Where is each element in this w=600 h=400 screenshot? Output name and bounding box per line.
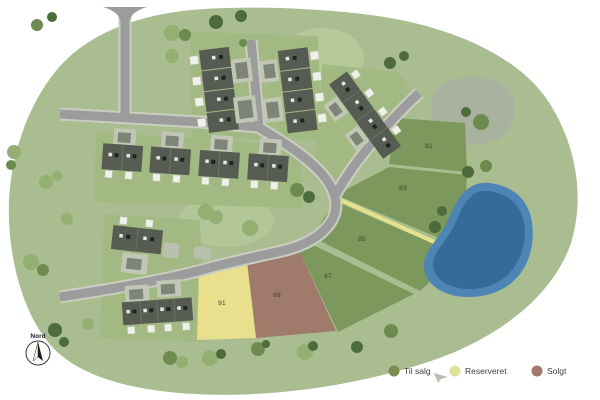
plot-number-89: 89 xyxy=(273,292,281,299)
solgt-swatch-icon xyxy=(532,366,543,377)
site-plan-canvas: 81 83 85 87 89 91 Nord xyxy=(0,0,600,400)
cursor-icon xyxy=(434,373,448,383)
plot-number-91: 91 xyxy=(218,300,226,307)
plot-number-87: 87 xyxy=(324,273,332,280)
legend-item-reserveret: Reserveret xyxy=(450,366,508,377)
legend-label-til-salg: Til salg xyxy=(404,366,431,376)
reserveret-swatch-icon xyxy=(450,366,461,377)
legend-label-reserveret: Reserveret xyxy=(465,366,507,376)
plot-number-81: 81 xyxy=(425,143,433,150)
compass-label: Nord xyxy=(30,333,45,340)
legend-item-til-salg: Til salg xyxy=(389,366,431,377)
site-plan: 81 83 85 87 89 91 Nord xyxy=(0,0,600,400)
legend-item-solgt: Solgt xyxy=(532,366,568,377)
til-salg-swatch-icon xyxy=(389,366,400,377)
legend: Til salg Reserveret Solgt xyxy=(389,366,568,377)
legend-label-solgt: Solgt xyxy=(547,366,567,376)
carport-apron xyxy=(162,242,179,259)
plot-number-85: 85 xyxy=(358,236,366,243)
plot-number-83: 83 xyxy=(399,185,407,192)
carport-apron xyxy=(193,246,211,260)
